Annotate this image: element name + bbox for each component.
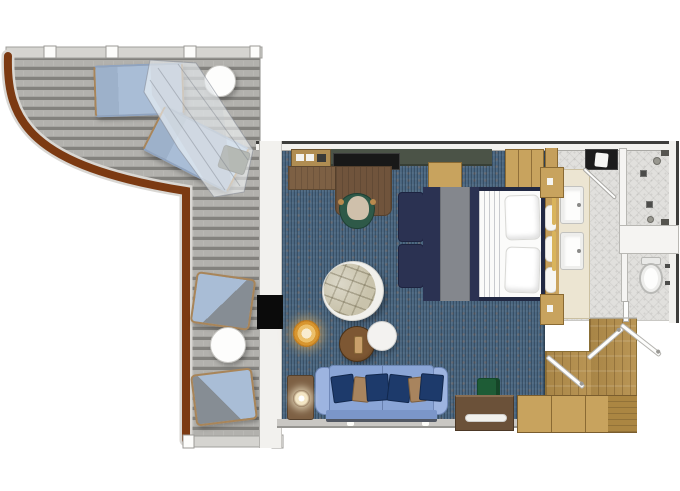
wall-post [44, 46, 56, 58]
toilet-room-wall [621, 253, 628, 302]
bathroom-divider-wall [619, 148, 627, 226]
bathroom-divider-wall [619, 225, 679, 254]
bed-pillow [504, 194, 541, 240]
wall-post [184, 46, 196, 58]
table-lamp [293, 320, 320, 347]
wall-post [183, 435, 194, 448]
double-bed [423, 187, 545, 301]
wall-fixture [665, 264, 670, 268]
throw-pillow [419, 373, 444, 402]
cabinet-divider [585, 396, 586, 432]
wall-fixture [665, 281, 670, 285]
shower-fitting [661, 150, 669, 156]
side-table-with-lamp [287, 375, 314, 420]
balcony-table [204, 65, 236, 97]
cabinet-run [517, 395, 637, 433]
deck-chair [190, 367, 258, 426]
floor-plan [0, 0, 680, 491]
floor-drain [646, 201, 653, 208]
wall-post [250, 46, 260, 58]
console-tray [465, 414, 507, 422]
bed-ottoman [398, 244, 424, 288]
shower-fitting [647, 216, 654, 223]
sofa [316, 365, 447, 422]
bathroom-counter [585, 149, 618, 170]
sofa-armrest [315, 367, 330, 415]
floor-drain [640, 170, 647, 177]
wall-post [106, 46, 118, 58]
chair-seat [347, 196, 369, 220]
side-table [367, 321, 397, 351]
minibar-item [317, 154, 326, 162]
nightstand-item [547, 178, 553, 185]
toilet-bowl [639, 263, 663, 294]
bed-pillow [504, 246, 541, 293]
cabinet-section [608, 396, 637, 432]
minibar-item [296, 154, 304, 161]
bench [428, 162, 462, 189]
balcony-door [257, 295, 283, 329]
bed-ottoman [398, 192, 424, 242]
toilet [637, 257, 665, 295]
sink [560, 232, 584, 270]
threshold [589, 317, 637, 319]
lamp-glow [293, 390, 310, 407]
deck-chair [190, 271, 257, 331]
cabinet-divider [551, 396, 552, 432]
bed-runner [440, 187, 470, 301]
balcony-top-wall [6, 47, 262, 58]
nightstand-item [547, 305, 553, 312]
console-table [455, 395, 514, 431]
nightstand [540, 294, 564, 325]
nightstand [540, 167, 564, 198]
table-tray [354, 336, 363, 354]
shower-fitting [661, 219, 669, 225]
balcony-table [210, 327, 246, 363]
counter-basin [594, 152, 608, 167]
shower-fitting [653, 157, 661, 165]
towel-bar [552, 231, 556, 271]
sofa-back [326, 410, 437, 422]
minibar-item [306, 154, 314, 161]
